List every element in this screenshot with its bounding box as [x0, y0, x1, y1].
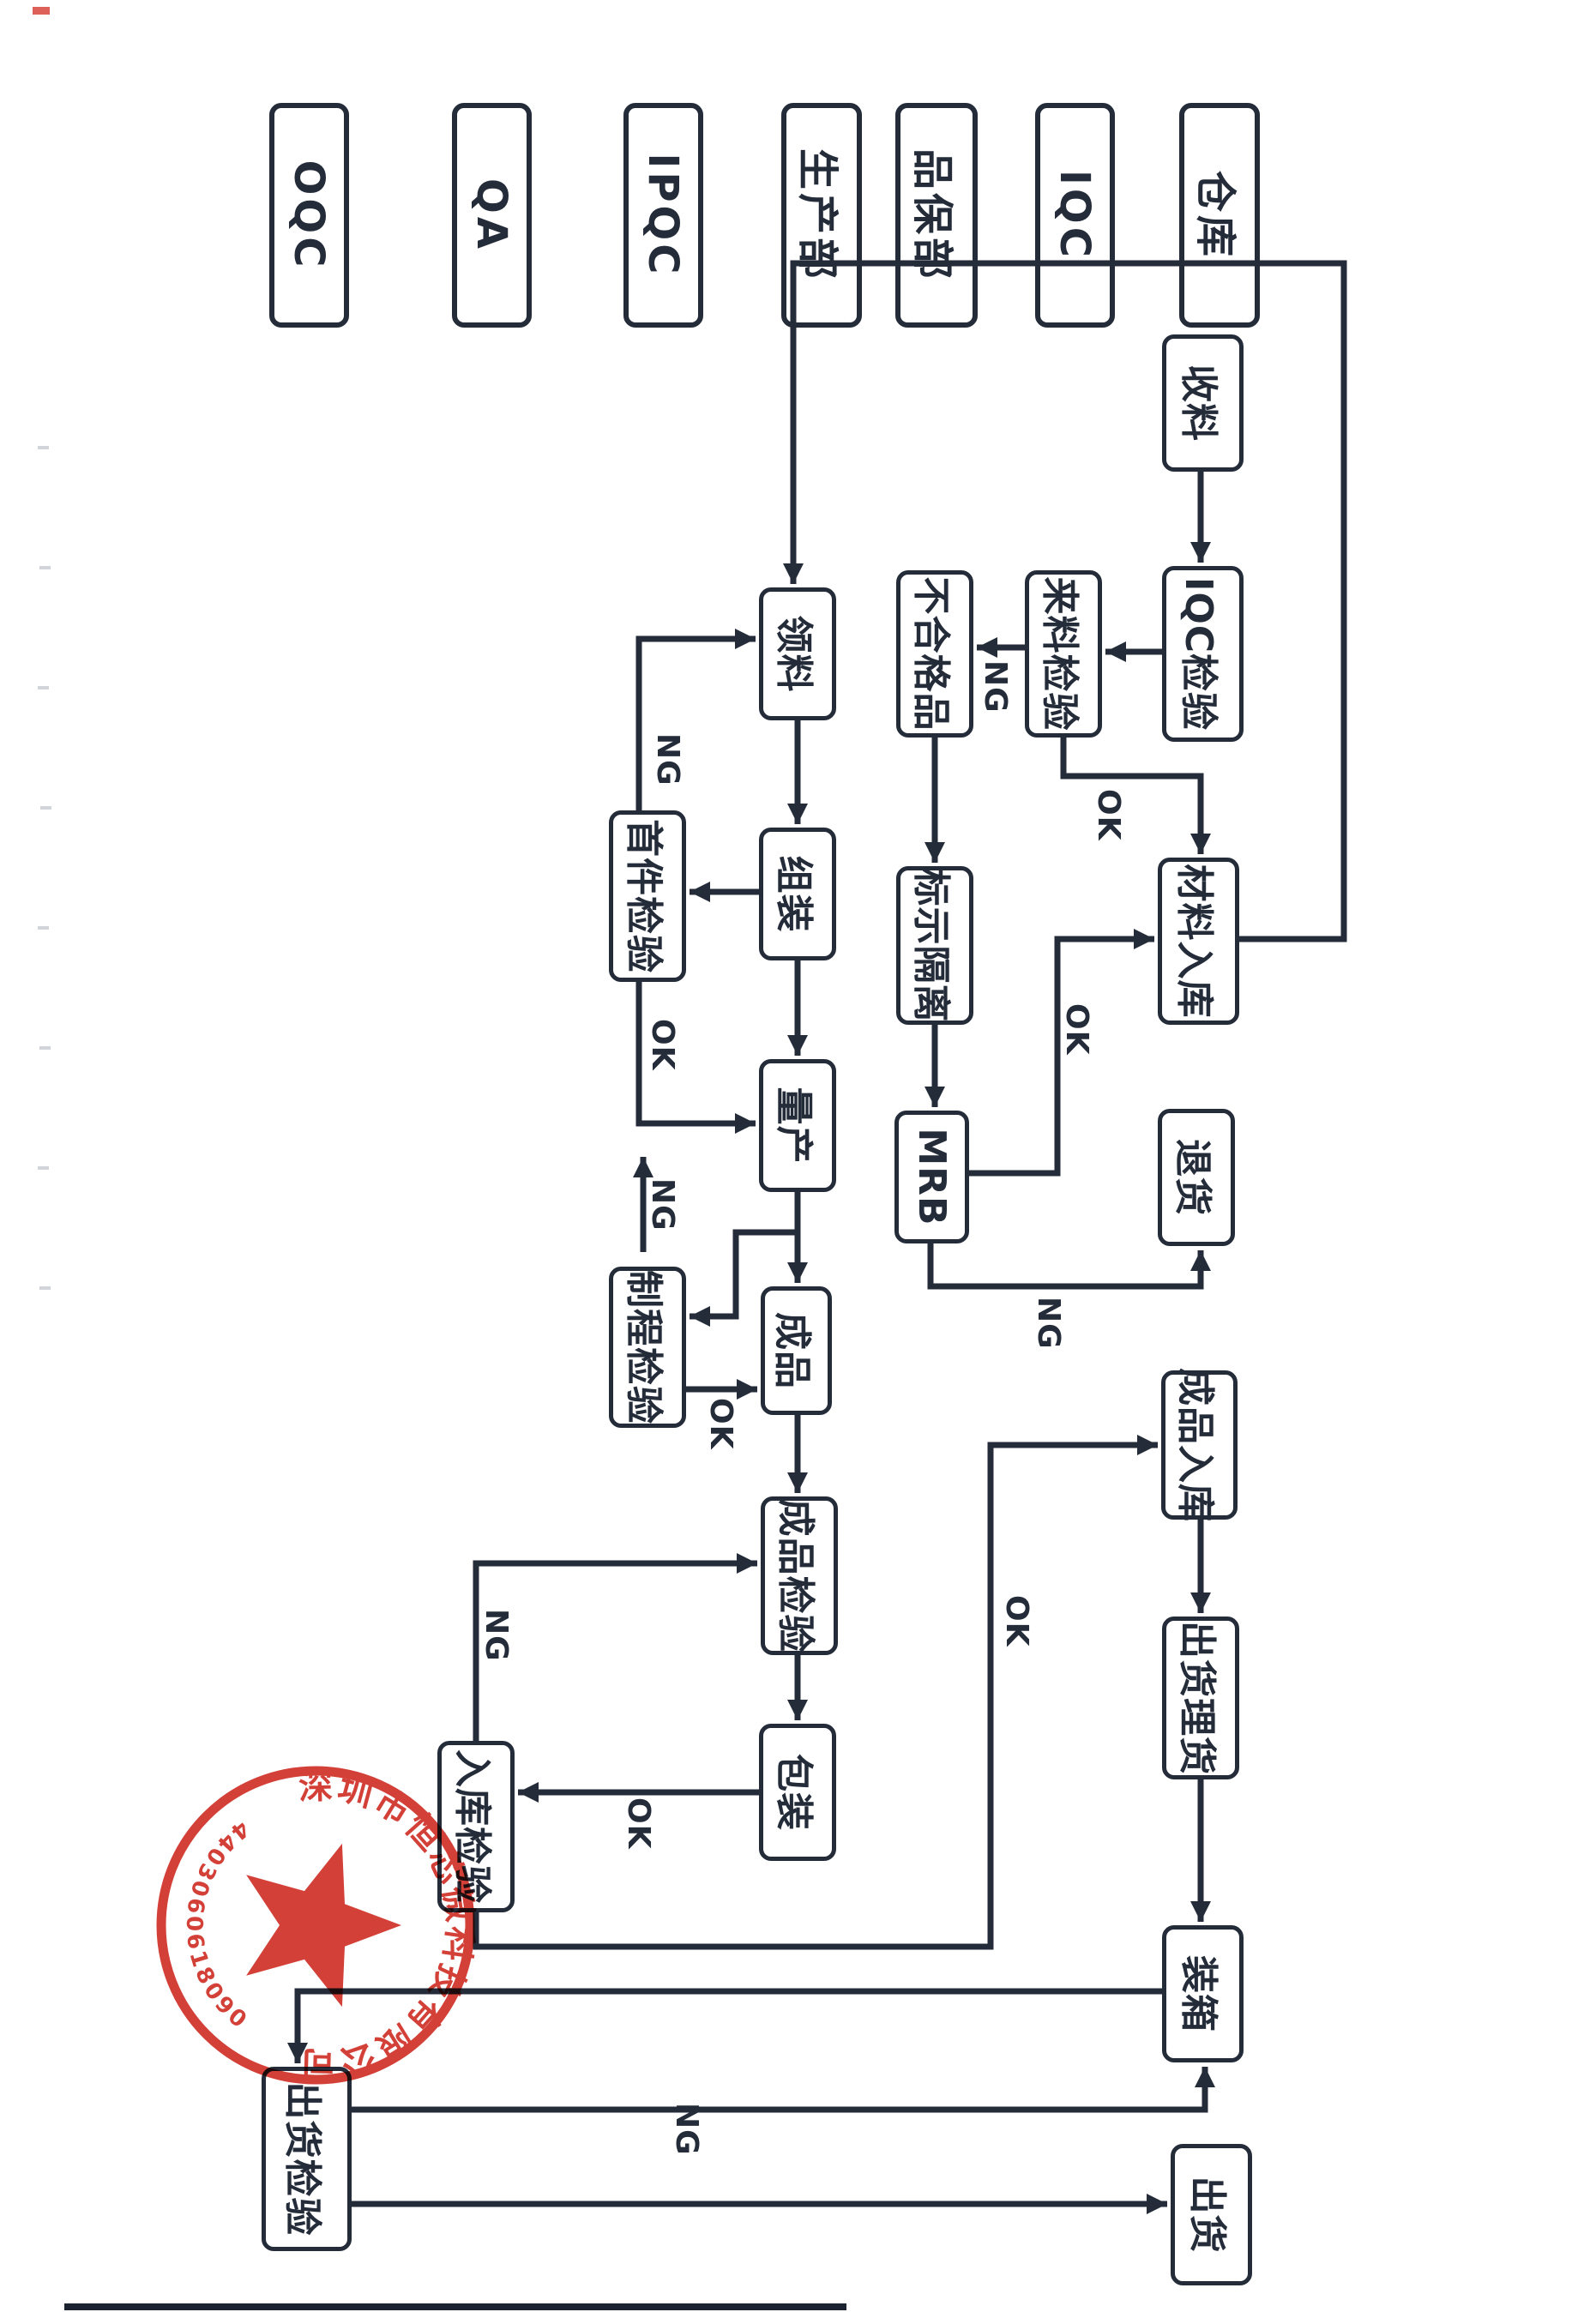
node-incoming-inspection: 来料检验	[1025, 570, 1102, 738]
node-shipping-tally: 出货理货	[1162, 1617, 1239, 1779]
node-pick-material: 领料	[759, 587, 836, 720]
node-finished-product: 成品	[761, 1286, 832, 1415]
node-first-article-inspection: 首件检验	[609, 810, 686, 982]
edge-label-incoming-inspection-ok: OK	[1091, 789, 1126, 841]
node-assembly: 组装	[759, 828, 836, 960]
edge-mrb-ok-to-material-storage	[969, 939, 1154, 1173]
edge-label-process-inspection-ng: NG	[645, 1178, 680, 1231]
scan-mark	[39, 1286, 51, 1290]
edge-storage-insp-ng-to-fp-inspection	[476, 1563, 757, 1741]
stamp-star-icon	[246, 1844, 401, 2007]
scan-mark	[39, 1046, 51, 1050]
node-label: 成品入库	[1172, 1368, 1227, 1522]
edge-label-process-inspection-ok: OK	[703, 1398, 738, 1450]
edge-label-packaging-ok: OK	[621, 1797, 656, 1850]
scan-mark	[38, 1166, 49, 1170]
node-material-storage: 材料入库	[1158, 858, 1239, 1025]
node-label: 收料	[1176, 364, 1231, 442]
node-label: 出货	[1184, 2177, 1239, 2254]
node-return-goods: 退货	[1158, 1109, 1235, 1246]
edge-label-first-article-ng: NG	[650, 733, 685, 786]
svg-text:4403060618090: 4403060618090	[181, 1815, 254, 2036]
node-label: 成品	[769, 1312, 824, 1389]
scan-mark	[40, 806, 51, 810]
edge-label-storage-inspection-ok: OK	[999, 1595, 1034, 1647]
company-stamp: 深圳市恒芯微科技有限公司 4403060618090	[136, 1745, 496, 2105]
edge-label-first-article-ok: OK	[645, 1019, 680, 1071]
node-finished-product-inspection: 成品检验	[761, 1496, 838, 1655]
node-label: 包装	[770, 1754, 825, 1831]
edge-label-shipping-inspection-ng: NG	[669, 2103, 704, 2156]
node-nonconforming-product: 不合格品	[896, 570, 973, 738]
edge-label-incoming-inspection-ng: NG	[978, 660, 1013, 713]
flowchart-canvas: 仓库 IQC 品保部 生产部 IPQC QA OQC	[0, 0, 1596, 2312]
node-label: 组装	[770, 856, 825, 933]
scan-mark	[39, 566, 51, 569]
node-label: 领料	[770, 616, 825, 693]
node-process-inspection: 制程检验	[609, 1267, 686, 1428]
edge-label-mrb-ng: NG	[1031, 1297, 1066, 1350]
node-iqc-inspection: IQC检验	[1162, 566, 1244, 742]
node-label: 首件检验	[620, 819, 675, 973]
edge-incoming-ok-to-material-storage	[1063, 738, 1201, 854]
node-label: 退货	[1169, 1139, 1224, 1216]
scan-mark	[38, 446, 49, 449]
node-finished-goods-storage: 成品入库	[1161, 1370, 1238, 1520]
edge-mrb-ng-to-return-goods	[930, 1243, 1201, 1286]
node-label: IQC检验	[1176, 577, 1231, 731]
stamp-serial-text: 4403060618090	[181, 1815, 254, 2036]
node-label: 制程检验	[620, 1270, 675, 1424]
node-label: 出货理货	[1173, 1621, 1228, 1775]
node-label: 量产	[770, 1087, 825, 1165]
edge-label-mrb-ok: OK	[1059, 1003, 1094, 1056]
node-label: 材料入库	[1171, 864, 1226, 1019]
node-shipping: 出货	[1171, 2144, 1252, 2285]
node-label: 不合格品	[907, 577, 962, 732]
scan-mark-red	[33, 7, 50, 15]
node-packaging: 包装	[759, 1724, 836, 1861]
edge-label-storage-inspection-ng: NG	[479, 1609, 514, 1662]
scan-mark	[38, 686, 49, 689]
scan-edge-line	[64, 2303, 846, 2310]
node-label: MRB	[910, 1128, 954, 1225]
scan-mark	[38, 926, 49, 930]
node-mass-production: 量产	[759, 1059, 836, 1192]
node-boxing: 装箱	[1162, 1925, 1244, 2062]
node-mrb: MRB	[894, 1111, 969, 1243]
node-label: 标示隔离	[907, 869, 962, 1023]
node-receive-material: 收料	[1162, 334, 1244, 472]
node-label: 装箱	[1176, 1955, 1231, 2032]
node-mark-and-isolate: 标示隔离	[896, 866, 973, 1025]
node-label: 来料检验	[1036, 577, 1091, 732]
node-label: 成品检验	[772, 1499, 827, 1653]
